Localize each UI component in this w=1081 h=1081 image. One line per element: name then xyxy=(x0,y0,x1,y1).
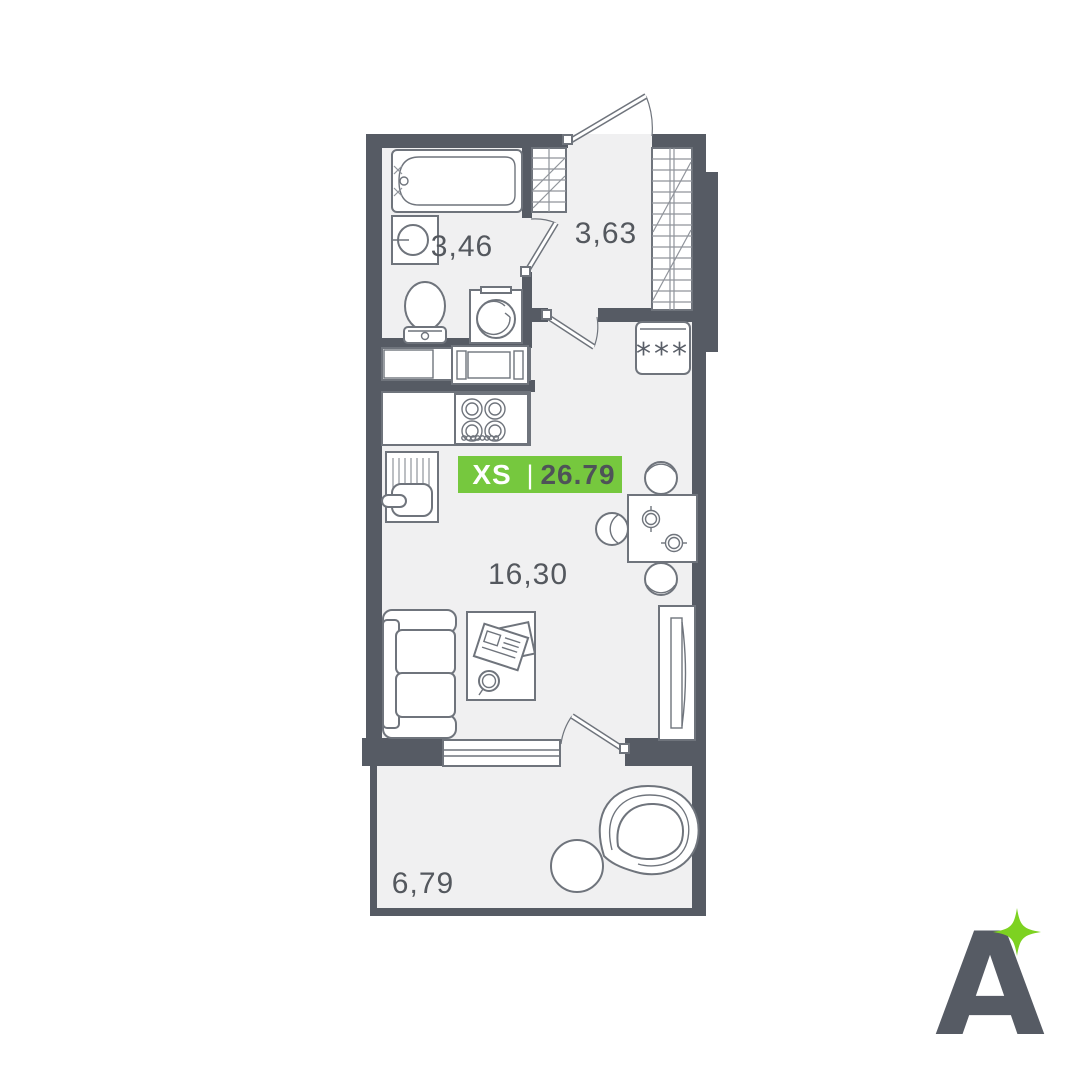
bathroom-area-label: 3,46 xyxy=(431,230,493,263)
armchair xyxy=(600,786,699,874)
bathroom-door-hinge xyxy=(521,267,530,276)
dining-table xyxy=(628,495,697,562)
badge-area-value: 26.79 xyxy=(540,459,615,490)
living-area-label: 16,30 xyxy=(488,558,568,591)
balcony-window xyxy=(443,740,560,766)
fridge-stars-label: *** xyxy=(636,337,690,372)
wall-right-bump xyxy=(706,172,718,352)
dining-chair-bottom xyxy=(645,563,677,595)
tv-console xyxy=(452,346,528,384)
wardrobe-large xyxy=(652,148,692,310)
room-door-hinge xyxy=(542,310,551,319)
apartment-type-badge: XS | 26.79 xyxy=(458,456,622,493)
sofa xyxy=(383,610,456,738)
wall-living-bottom-left xyxy=(362,738,443,766)
hallway-area-label: 3,63 xyxy=(575,217,637,250)
badge-size-label: XS xyxy=(472,459,511,490)
balcony-area-label: 6,79 xyxy=(392,867,454,900)
wall-left xyxy=(366,134,382,766)
wardrobe-small-hatch xyxy=(532,148,566,212)
floor-plan-page: *** xyxy=(0,0,1081,1081)
wall-bathroom-right-upper xyxy=(522,148,532,218)
wardrobe-small xyxy=(532,148,566,212)
logo-letter: A xyxy=(935,903,1045,1068)
wall-top xyxy=(366,134,568,148)
badge-divider: | xyxy=(526,460,533,490)
dining-chair-left xyxy=(596,513,628,545)
floor-plan-svg: *** xyxy=(0,0,1081,1081)
coffee-table xyxy=(467,612,535,700)
kitchen-sink xyxy=(382,452,438,522)
wall-top-right xyxy=(652,134,706,148)
balcony-door-hinge xyxy=(620,744,629,753)
sink-tap xyxy=(382,495,406,507)
developer-logo: A xyxy=(935,903,1045,1068)
entrance-door-hinge xyxy=(563,135,572,144)
dining-chair-top xyxy=(645,462,677,494)
toilet xyxy=(404,282,446,343)
side-table xyxy=(551,840,603,892)
fridge: *** xyxy=(636,322,690,374)
tall-cabinet xyxy=(659,606,695,740)
wall-balcony-bottom xyxy=(370,908,706,916)
wall-living-bottom-right xyxy=(625,738,706,766)
bathtub xyxy=(392,150,522,212)
washing-machine xyxy=(470,287,522,343)
stove xyxy=(455,394,528,444)
wall-balcony-left xyxy=(370,766,377,912)
